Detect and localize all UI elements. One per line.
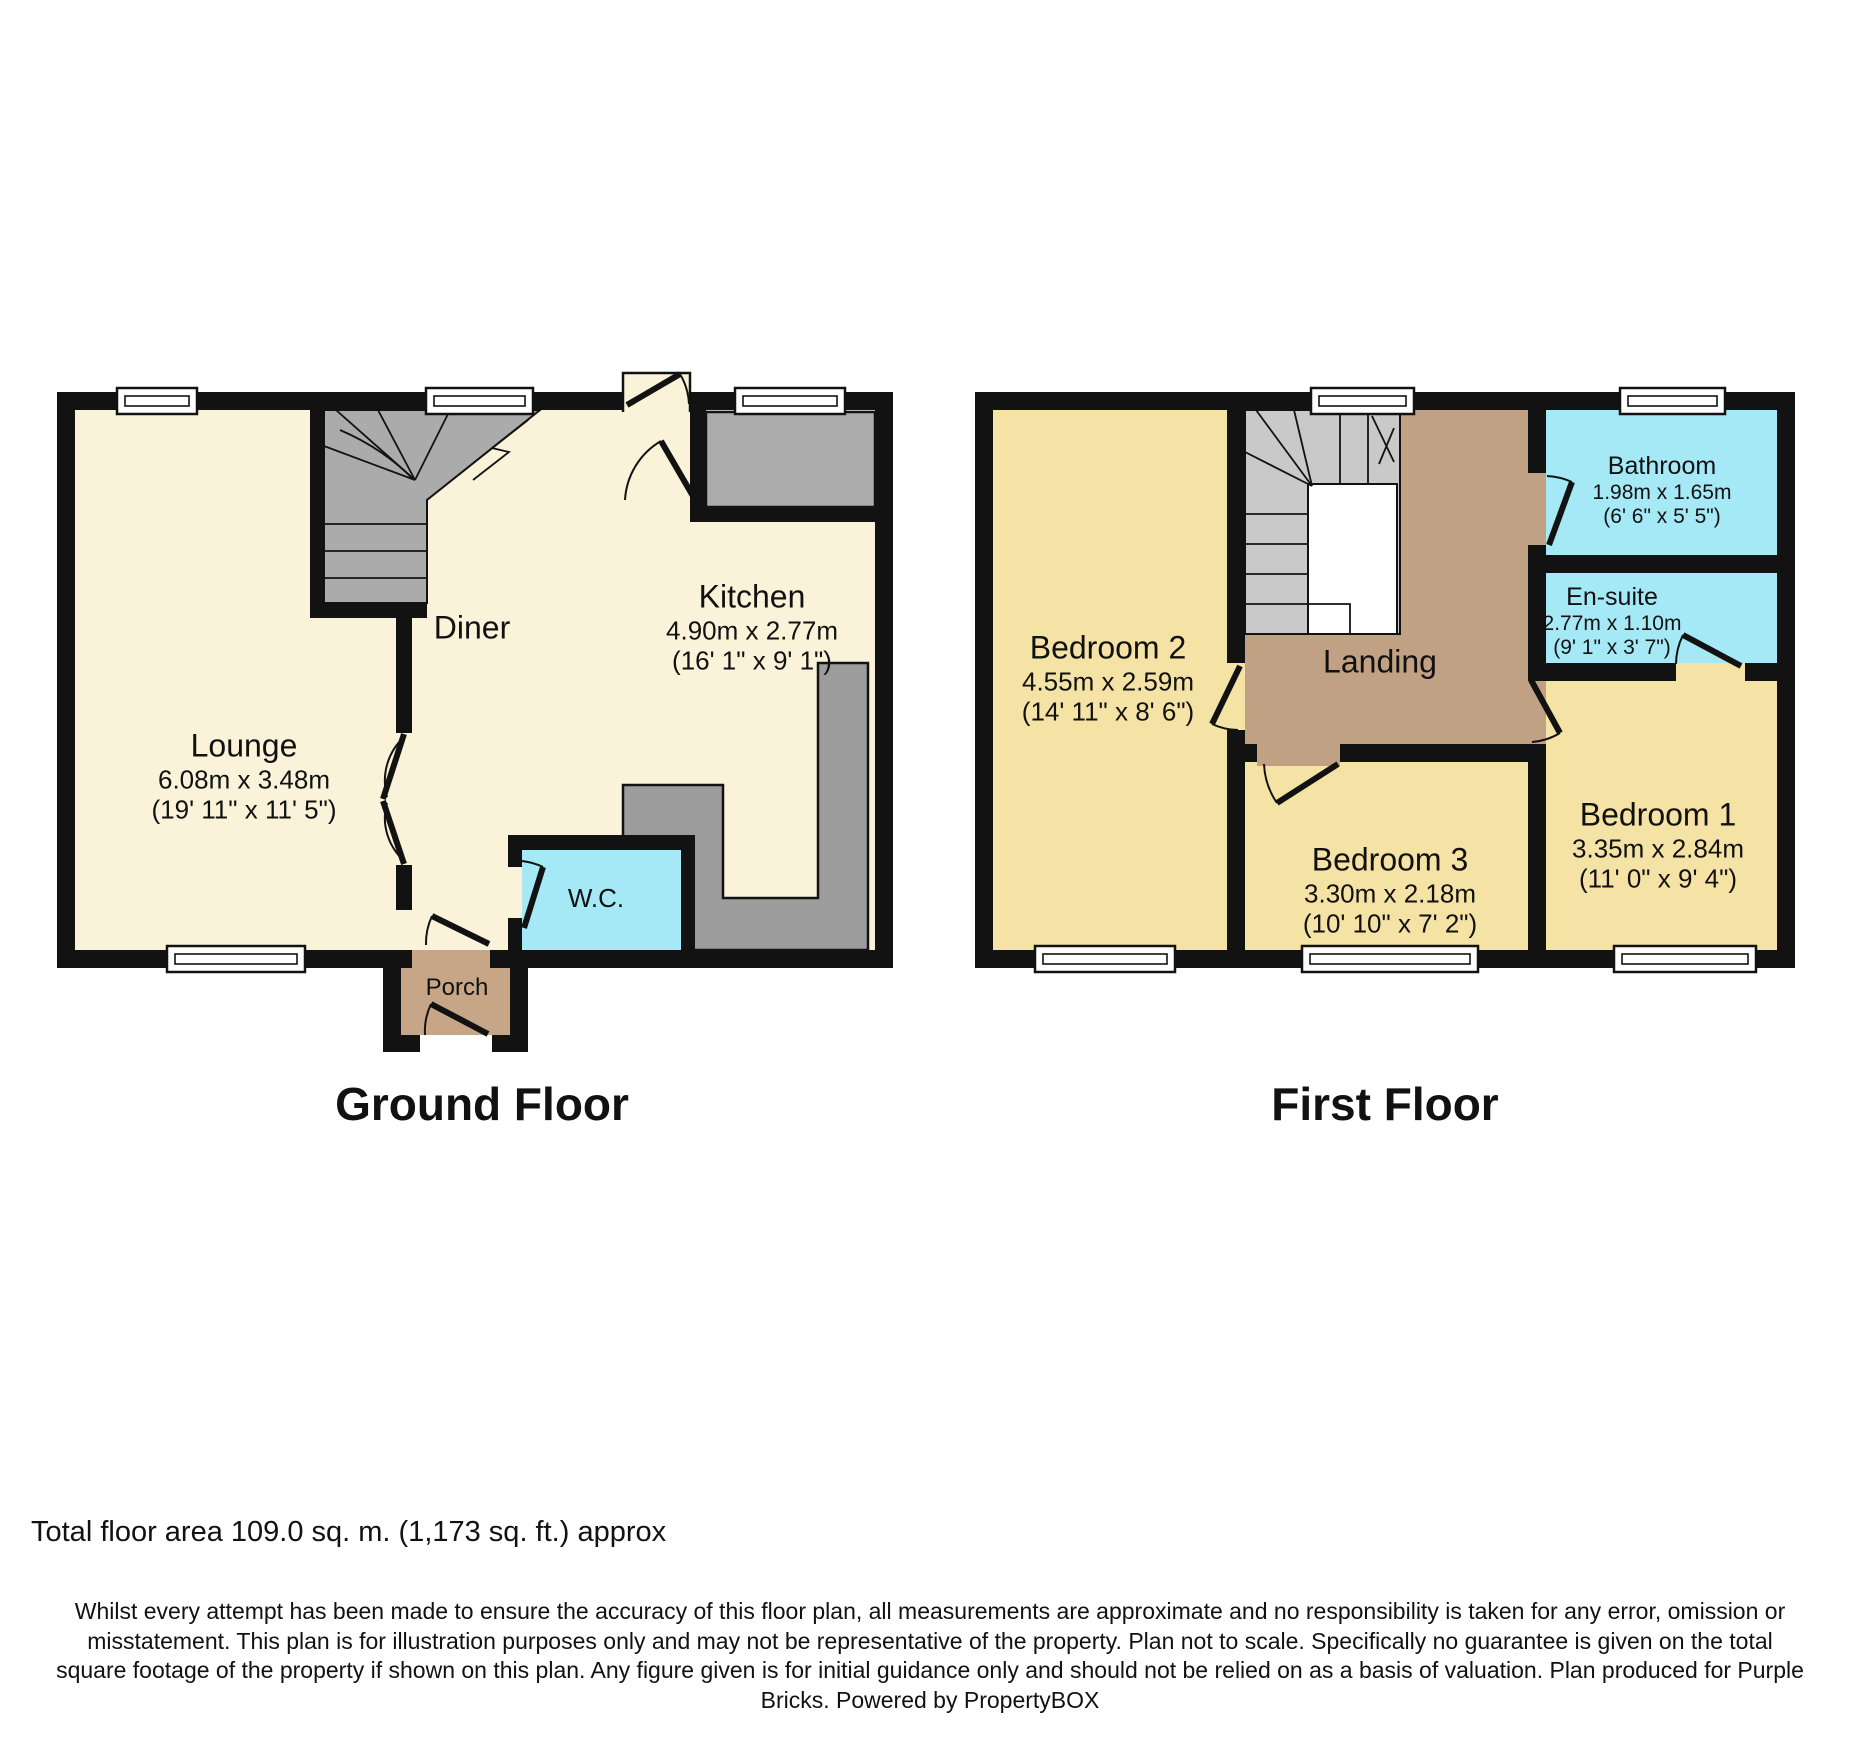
bedroom3-label: Bedroom 3 3.30m x 2.18m (10' 10" x 7' 2"… [1303, 841, 1477, 938]
window-icon [735, 388, 845, 414]
window-icon [117, 388, 197, 414]
kitchen-counter [706, 412, 875, 507]
window-icon [1035, 946, 1175, 972]
window-icon [1302, 946, 1478, 972]
ground-floor-plan [57, 373, 893, 1052]
total-floor-area: Total floor area 109.0 sq. m. (1,173 sq.… [31, 1516, 666, 1549]
bedroom1-label: Bedroom 1 3.35m x 2.84m (11' 0" x 9' 4") [1572, 796, 1744, 893]
window-icon [1620, 388, 1725, 414]
window-icon [1614, 946, 1756, 972]
lounge-label: Lounge 6.08m x 3.48m (19' 11" x 11' 5") [152, 727, 337, 824]
landing-threshold [1257, 744, 1340, 766]
ground-floor-title: Ground Floor [335, 1077, 629, 1131]
disclaimer-text: Whilst every attempt has been made to en… [0, 1597, 1860, 1715]
window-icon [426, 388, 533, 414]
staircase-first [1245, 410, 1400, 634]
first-floor-title: First Floor [1271, 1077, 1498, 1131]
window-icon [167, 946, 305, 972]
bedroom2-label: Bedroom 2 4.55m x 2.59m (14' 11" x 8' 6"… [1022, 629, 1194, 726]
landing-label: Landing [1323, 643, 1437, 680]
kitchen-label: Kitchen 4.90m x 2.77m (16' 1" x 9' 1") [666, 578, 838, 675]
window-icon [1311, 388, 1414, 414]
bathroom-label: Bathroom 1.98m x 1.65m (6' 6" x 5' 5") [1593, 452, 1732, 530]
floorplan-page: Lounge 6.08m x 3.48m (19' 11" x 11' 5") … [0, 0, 1860, 1745]
ensuite-label: En-suite 2.77m x 1.10m (9' 1" x 3' 7") [1543, 583, 1682, 661]
diner-label: Diner [434, 609, 510, 646]
porch-label: Porch [426, 974, 489, 1002]
back-door-recess [623, 373, 690, 412]
wc-label: W.C. [568, 883, 624, 913]
stair-void [1308, 484, 1397, 634]
